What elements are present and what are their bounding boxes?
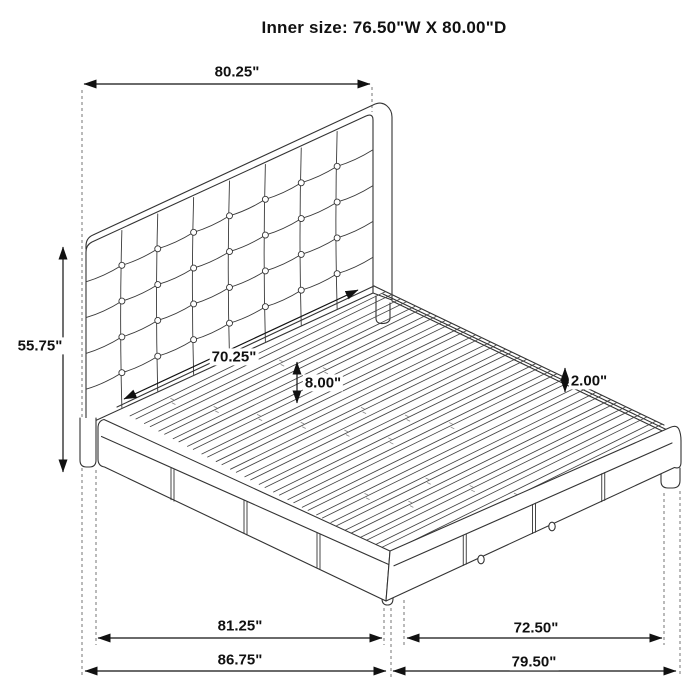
tuft-button [227, 213, 233, 219]
tuft-button [334, 163, 340, 169]
dim-overall-width: 79.50" [510, 653, 559, 670]
tuft-button [227, 284, 233, 290]
diagram-canvas: Inner size: 76.50"W X 80.00"D 80.25" 55.… [0, 0, 700, 700]
tuft-button [155, 353, 161, 359]
support-glide [478, 555, 484, 564]
support-glide [549, 522, 555, 531]
dim-slat-thickness: 2.00" [569, 372, 609, 389]
tuft-button [227, 320, 233, 326]
dim-side-rail-length: 81.25" [216, 617, 265, 634]
tuft-button [334, 271, 340, 277]
tuft-button [262, 268, 268, 274]
tuft-button [334, 235, 340, 241]
tuft-button [334, 199, 340, 205]
diagram-title: Inner size: 76.50"W X 80.00"D [260, 18, 509, 38]
dim-headboard-height: 55.75" [16, 337, 65, 354]
tuft-button [191, 337, 197, 343]
tuft-button [298, 287, 304, 293]
tuft-button [227, 249, 233, 255]
tuft-button [298, 180, 304, 186]
tuft-button [262, 232, 268, 238]
tuft-button [155, 317, 161, 323]
tuft-button [119, 370, 125, 376]
dim-inner-width: 70.25" [210, 348, 259, 365]
tuft-button [262, 304, 268, 310]
tuft-button [191, 301, 197, 307]
tuft-button [262, 196, 268, 202]
dim-headboard-width: 80.25" [213, 63, 262, 80]
dim-platform-height: 8.00" [303, 374, 343, 391]
tuft-button [119, 298, 125, 304]
tuft-button [155, 246, 161, 252]
bed-isometric-drawing [0, 0, 700, 700]
tuft-button [119, 334, 125, 340]
tuft-button [119, 262, 125, 268]
bed-outline [80, 103, 681, 605]
tuft-button [191, 229, 197, 235]
tuft-button [191, 265, 197, 271]
dim-foot-rail-length: 72.50" [512, 619, 561, 636]
tuft-button [298, 251, 304, 257]
tuft-button [298, 216, 304, 222]
tuft-button [155, 282, 161, 288]
dim-overall-depth: 86.75" [216, 651, 265, 668]
